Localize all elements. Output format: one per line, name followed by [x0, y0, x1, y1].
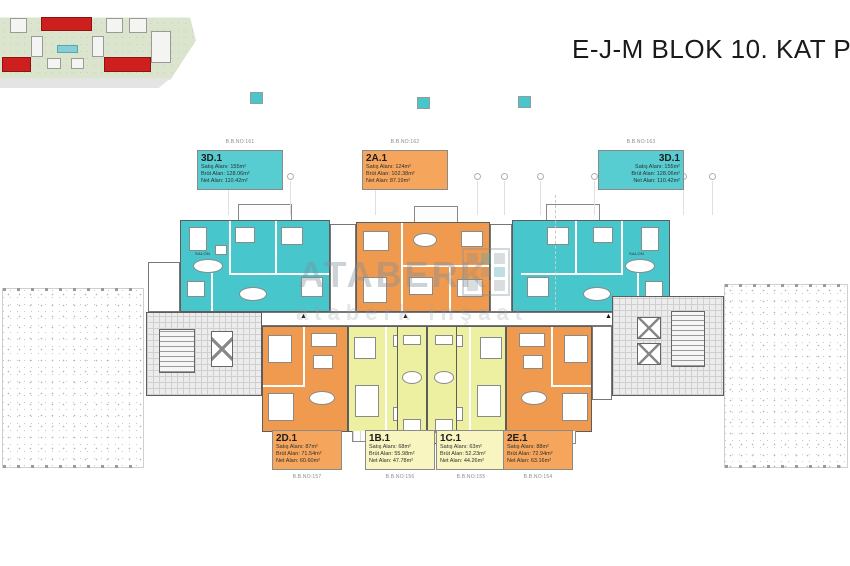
- inner-wall: [575, 221, 577, 275]
- site-pool: [57, 45, 79, 53]
- elevator-left: [211, 331, 233, 367]
- entrance-arrow: ▲: [402, 313, 409, 320]
- furniture: [355, 385, 379, 417]
- inner-wall: [263, 385, 305, 387]
- bbno-label: B.B.NO:162: [362, 139, 448, 145]
- elevator-right-2: [637, 343, 661, 365]
- unit-card-3d1-right: 3D.1 Satış Alanı: 155m² Brüt Alan: 128.0…: [598, 150, 684, 190]
- inner-wall: [229, 273, 329, 275]
- unit-2a1-block: [356, 222, 490, 312]
- site-plan-thumbnail: [0, 6, 196, 88]
- grid-leader-line: [504, 181, 505, 215]
- furniture: [409, 277, 433, 295]
- room-label-salon: SALON: [629, 251, 644, 256]
- entrance-arrow: ▲: [605, 313, 612, 320]
- furniture: [187, 281, 205, 297]
- furniture: [435, 335, 453, 345]
- unit-card-3d1-left: 3D.1 Satış Alanı: 155m² Brüt Alan: 128.0…: [197, 150, 283, 190]
- unit-card-2e1: 2E.1 Satış Alanı: 88m² Brüt Alan: 72.94m…: [503, 430, 573, 470]
- satis-alani: Satış Alanı: 88m²: [507, 444, 569, 451]
- site-building: [92, 36, 104, 57]
- room-label-salon: SALON: [195, 251, 210, 256]
- grid-leader-line: [594, 181, 595, 215]
- inner-wall: [551, 385, 592, 387]
- site-building: [104, 57, 151, 73]
- unit-2d1-block: [262, 326, 348, 432]
- stairs-left: [159, 329, 195, 373]
- furniture: [564, 335, 588, 363]
- grid-leader-line: [290, 181, 291, 215]
- furniture: [625, 259, 655, 273]
- furniture: [477, 385, 501, 417]
- furniture: [523, 355, 543, 369]
- furniture: [235, 227, 255, 243]
- roof-tag: [250, 92, 263, 104]
- unit-2e1-block: [506, 326, 592, 432]
- unit-card-2a1: 2A.1 Satış Alanı: 124m² Brüt Alan: 102.3…: [362, 150, 448, 190]
- satis-alani: Satış Alanı: 63m²: [440, 444, 502, 451]
- satis-alani: Satış Alanı: 155m²: [201, 164, 279, 171]
- furniture: [413, 233, 437, 247]
- grid-bubble: [474, 173, 481, 180]
- floor-plan-sheet: E-J-M BLOK 10. KAT PLANI SALON SALON: [0, 0, 850, 566]
- entrance-arrow: ▲: [300, 313, 307, 320]
- terrace-left: [2, 288, 144, 468]
- core-left: [146, 312, 262, 396]
- furniture: [354, 337, 376, 359]
- inner-wall: [303, 327, 305, 385]
- grid-bubble: [537, 173, 544, 180]
- inner-wall: [401, 223, 403, 311]
- corridor-top-right: [490, 224, 512, 312]
- site-building: [71, 58, 85, 69]
- grid-bubble: [287, 173, 294, 180]
- unit-code: 2D.1: [276, 433, 338, 444]
- furniture: [309, 391, 335, 405]
- inner-wall: [551, 327, 553, 385]
- furniture: [311, 333, 337, 347]
- furniture: [547, 227, 569, 245]
- corridor-top-left: [330, 224, 356, 312]
- furniture: [645, 281, 663, 297]
- inner-wall: [385, 327, 387, 431]
- net-alan: Net Alan: 47.78m²: [369, 458, 431, 465]
- bbno-label: B.B.NO:155: [436, 474, 506, 480]
- terrace-right: [724, 284, 848, 468]
- page-title: E-J-M BLOK 10. KAT PLANI: [572, 34, 850, 65]
- furniture: [215, 245, 227, 255]
- furniture: [193, 259, 223, 273]
- unit-1c1-salon-bay: [427, 326, 457, 444]
- furniture: [434, 371, 454, 384]
- furniture: [480, 337, 502, 359]
- inner-wall: [229, 221, 231, 275]
- site-building: [151, 31, 171, 64]
- satis-alani: Satış Alanı: 124m²: [366, 164, 444, 171]
- annex-right: [592, 326, 612, 400]
- site-building: [31, 36, 43, 57]
- inner-wall: [521, 273, 621, 275]
- net-alan: Net Alan: 44.26m²: [440, 458, 502, 465]
- site-building: [106, 18, 124, 33]
- site-building: [2, 57, 31, 73]
- furniture: [527, 277, 549, 297]
- bbno-label: B.B.NO:163: [598, 139, 684, 145]
- furniture: [363, 277, 387, 303]
- furniture: [268, 393, 294, 421]
- unit-card-2d1: 2D.1 Satış Alanı: 87m² Brüt Alan: 71.54m…: [272, 430, 342, 470]
- bbno-label: B.B.NO:161: [197, 139, 283, 145]
- grid-bubble: [709, 173, 716, 180]
- unit-1b1-salon-bay: [397, 326, 427, 444]
- stairs-right: [671, 311, 705, 367]
- inner-wall: [449, 267, 451, 311]
- unit-code: 2E.1: [507, 433, 569, 444]
- brut-alan: Brüt Alan: 55.98m²: [369, 451, 431, 458]
- net-alan: Net Alan: 63.16m²: [507, 458, 569, 465]
- furniture: [268, 335, 292, 363]
- unit-code: 3D.1: [201, 153, 279, 164]
- inner-wall: [275, 221, 277, 275]
- site-building: [41, 17, 92, 31]
- site-building: [129, 18, 147, 33]
- satis-alani: Satış Alanı: 87m²: [276, 444, 338, 451]
- central-corridor: [262, 312, 612, 326]
- inner-wall: [211, 273, 213, 311]
- grid-leader-line: [712, 181, 713, 215]
- bbno-label: B.B.NO:154: [503, 474, 573, 480]
- roof-box-center: [414, 206, 458, 222]
- inner-wall: [469, 327, 471, 431]
- furniture: [583, 287, 611, 301]
- furniture: [402, 371, 422, 384]
- bbno-label: B.B.NO:156: [365, 474, 435, 480]
- satis-alani: Satış Alanı: 155m²: [602, 164, 680, 171]
- roof-tag: [417, 97, 430, 109]
- net-alan: Net Alan: 60.60m²: [276, 458, 338, 465]
- brut-alan: Brüt Alan: 71.54m²: [276, 451, 338, 458]
- furniture: [403, 335, 421, 345]
- unit-code: 1C.1: [440, 433, 502, 444]
- unit-card-1c1: 1C.1 Satış Alanı: 63m² Brüt Alan: 52.23m…: [436, 430, 506, 470]
- furniture: [301, 277, 323, 297]
- furniture: [519, 333, 545, 347]
- brut-alan: Brüt Alan: 72.94m²: [507, 451, 569, 458]
- unit-code: 1B.1: [369, 433, 431, 444]
- core-right: [612, 296, 724, 396]
- unit-3d1-left-block: SALON: [180, 220, 330, 312]
- brut-alan: Brüt Alan: 52.23m²: [440, 451, 502, 458]
- furniture: [239, 287, 267, 301]
- furniture: [363, 231, 389, 251]
- furniture: [281, 227, 303, 245]
- grid-bubble: [501, 173, 508, 180]
- grid-leader-line: [540, 181, 541, 215]
- unit-code: 3D.1: [602, 153, 680, 164]
- site-building: [47, 58, 61, 69]
- section-line: [555, 195, 556, 310]
- brut-alan: Brüt Alan: 128.06m²: [201, 171, 279, 178]
- furniture: [521, 391, 547, 405]
- furniture: [457, 279, 483, 297]
- inner-wall: [621, 221, 623, 275]
- roof-tag: [518, 96, 531, 108]
- brut-alan: Brüt Alan: 102.38m²: [366, 171, 444, 178]
- brut-alan: Brüt Alan: 128.06m²: [602, 171, 680, 178]
- bbno-label: B.B.NO:157: [272, 474, 342, 480]
- elevator-right-1: [637, 317, 661, 339]
- furniture: [189, 227, 207, 251]
- furniture: [593, 227, 613, 243]
- site-building: [10, 18, 28, 33]
- inner-wall: [401, 265, 489, 267]
- annex-left: [148, 262, 180, 312]
- furniture: [562, 393, 588, 421]
- net-alan: Net Alan: 110.42m²: [201, 178, 279, 185]
- net-alan: Net Alan: 110.42m²: [602, 178, 680, 185]
- satis-alani: Satış Alanı: 68m²: [369, 444, 431, 451]
- grid-bubble: [591, 173, 598, 180]
- furniture: [641, 227, 659, 251]
- net-alan: Net Alan: 87.19m²: [366, 178, 444, 185]
- furniture: [461, 231, 483, 247]
- unit-card-1b1: 1B.1 Satış Alanı: 68m² Brüt Alan: 55.98m…: [365, 430, 435, 470]
- furniture: [313, 355, 333, 369]
- grid-leader-line: [477, 181, 478, 215]
- unit-code: 2A.1: [366, 153, 444, 164]
